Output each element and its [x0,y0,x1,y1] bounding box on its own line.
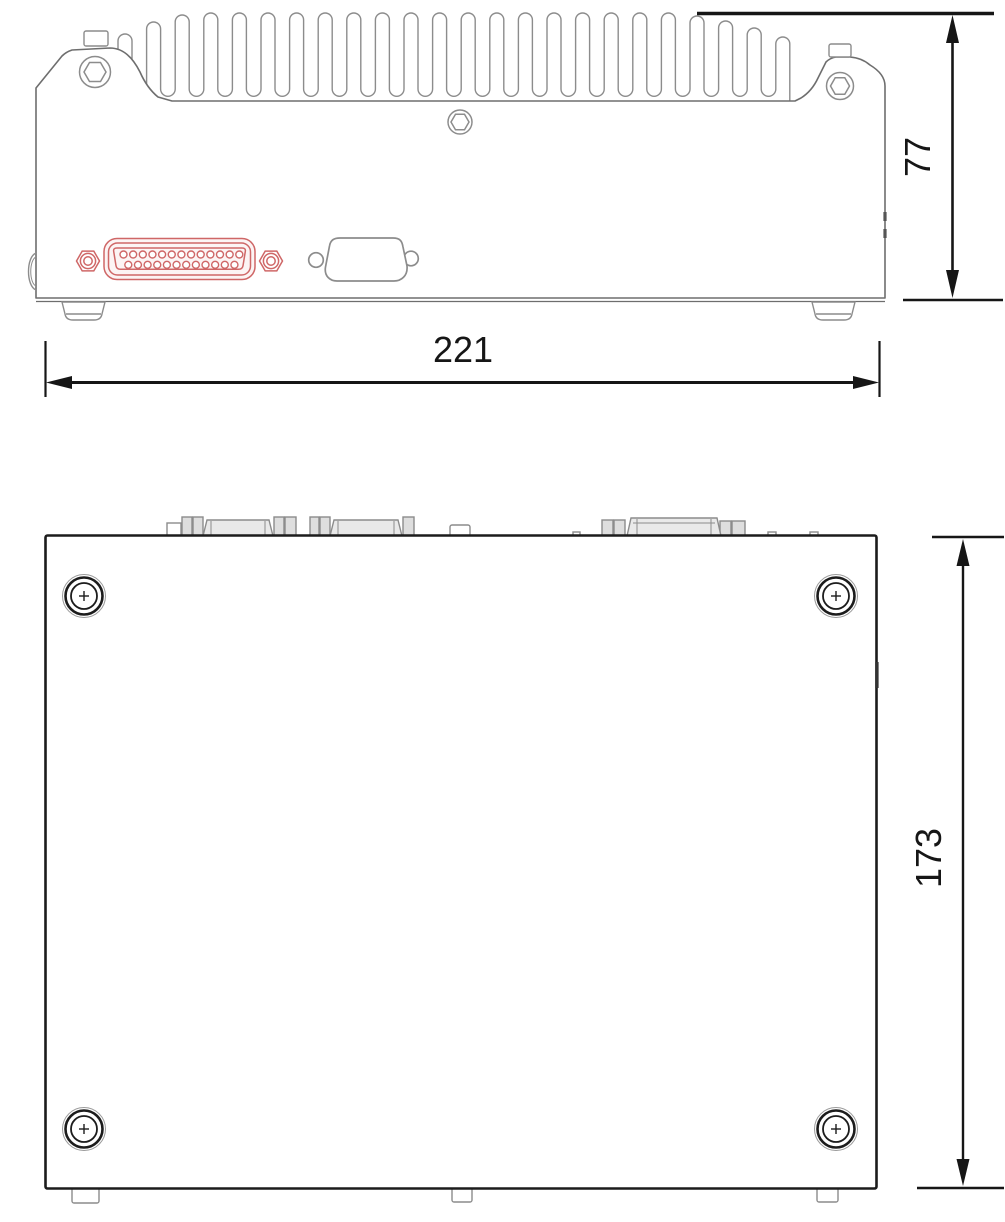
db25-pin [163,261,170,268]
db25-pin [120,251,127,258]
db25-pin [207,251,214,258]
bottom-plan-view [46,517,879,1203]
right-edge-notch [883,212,886,221]
depth-dimension: 173 [908,537,1004,1188]
arrowhead-up-icon [946,15,959,43]
db25-pin [125,261,132,268]
width-dimension-label: 221 [433,329,493,370]
heatsink-fins [118,13,790,101]
arrowhead-left-icon [46,376,72,389]
db25-pin [159,251,166,258]
db25-pin [178,251,185,258]
db25-pin [168,251,175,258]
db25-pin [144,261,151,268]
db25-pin [188,251,195,258]
db25-pin [192,261,199,268]
db9-shell [325,238,407,281]
db9-left-screw-hole [309,253,324,268]
db25-pin [202,261,209,268]
rear-connector-protrusions [167,517,818,536]
right-edge-seam [875,662,878,688]
db25-pin [134,261,141,268]
dsub-body-b [330,520,402,536]
db25-pin [212,261,219,268]
db25-pin [197,251,204,258]
db25-pin [217,251,224,258]
db25-connector-highlighted [77,239,283,280]
dimension-drawing-page: 77 221 173 [0,0,1005,1222]
db25-pin [226,251,233,258]
side-port-bump [29,253,37,290]
db25-pin [236,251,243,258]
arrowhead-up-icon [957,539,970,566]
depth-dimension-label: 173 [908,828,949,888]
edge-step [167,523,181,536]
front-elevation-view [29,13,887,320]
arrowhead-right-icon [853,376,879,389]
db25-pin [231,261,238,268]
dsub-body-c [627,518,721,536]
right-foot [812,302,855,320]
dsub-body-a [203,520,273,536]
db25-pin [139,251,146,258]
db25-pin [149,251,156,258]
db25-pin [173,261,180,268]
left-top-tab [84,31,108,46]
left-foot [62,302,105,320]
arrowhead-down-icon [957,1159,970,1186]
arrowhead-down-icon [946,270,959,298]
db25-pin [183,261,190,268]
right-top-tab [829,44,851,57]
height-dimension-label: 77 [897,137,938,177]
db25-pin [221,261,228,268]
right-edge-notch [883,229,886,238]
db25-pin [154,261,161,268]
width-dimension: 221 [46,329,880,397]
db25-pin [130,251,137,258]
dimension-drawing: 77 221 173 [0,0,1005,1222]
front-view-feet [62,302,855,320]
chassis-plan-outline [46,536,877,1189]
